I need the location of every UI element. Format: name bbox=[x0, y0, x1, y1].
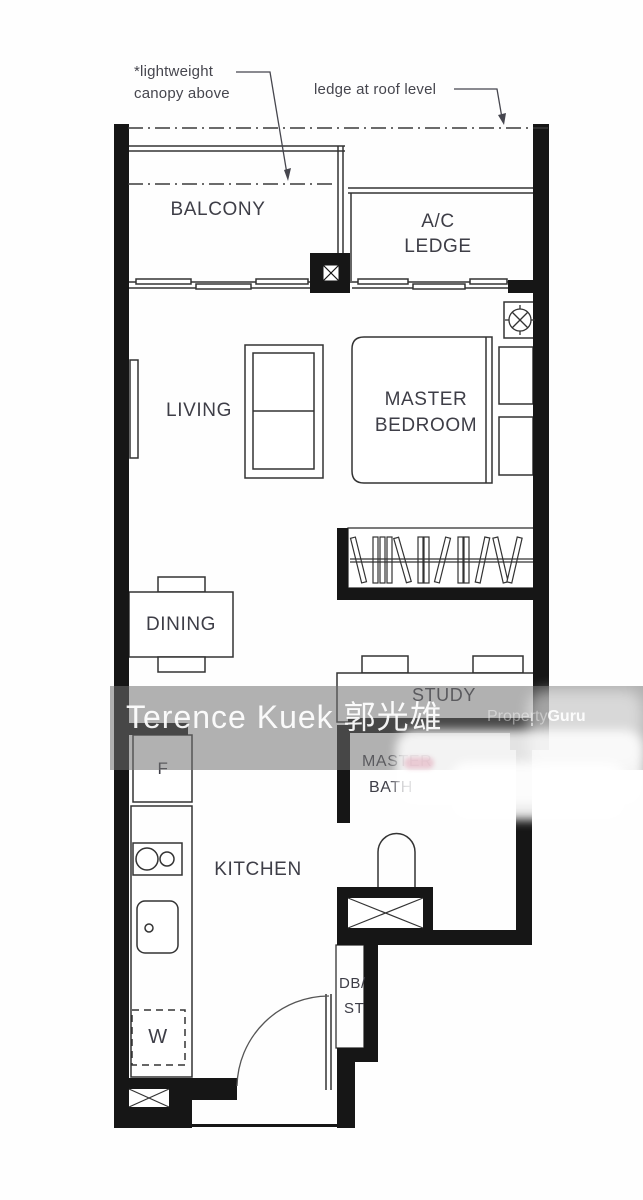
blur-blob bbox=[450, 762, 626, 820]
door-swing-arc bbox=[237, 996, 329, 1086]
room-label-dining: DINING bbox=[130, 614, 232, 636]
color-smudge bbox=[404, 757, 434, 769]
watermark-brand: PropertyGuru bbox=[487, 708, 586, 726]
washer-label: W bbox=[142, 1026, 174, 1049]
canopy-annotation: *lightweight canopy above bbox=[134, 61, 230, 105]
room-label-kitchen: KITCHEN bbox=[212, 859, 304, 881]
blur-blob bbox=[528, 690, 643, 770]
dbst-closet bbox=[336, 945, 364, 1048]
wall-left bbox=[114, 124, 129, 1128]
study-chair bbox=[473, 656, 523, 673]
side-window bbox=[130, 360, 138, 458]
watermark-agent-name: Terence Kuek 郭光雄 bbox=[126, 700, 443, 734]
wall-right bbox=[533, 124, 549, 730]
watermark-brand-bold: Guru bbox=[547, 708, 585, 725]
room-label-master-bedroom: MASTER BEDROOM bbox=[366, 387, 486, 439]
watermark-brand-light: Property bbox=[487, 708, 547, 725]
study-chair bbox=[362, 656, 408, 673]
canopy-annotation-line2: canopy above bbox=[134, 83, 230, 105]
floor-plan-page: *lightweight canopy above ledge at roof … bbox=[0, 0, 643, 1200]
roof-ledge-annotation: ledge at roof level bbox=[314, 81, 436, 98]
wall-entry bbox=[337, 1062, 355, 1128]
sink bbox=[137, 901, 178, 953]
wall-bath-bottom bbox=[337, 930, 531, 945]
leader-arrowheads bbox=[284, 113, 506, 181]
room-label-ac-ledge: A/C LEDGE bbox=[392, 209, 484, 259]
bedside-cabinet bbox=[499, 347, 533, 404]
dining-chair bbox=[158, 577, 205, 592]
room-label-balcony: BALCONY bbox=[148, 199, 288, 221]
toilet bbox=[378, 834, 415, 889]
floor-plan-drawing bbox=[0, 0, 643, 1200]
dining-chair bbox=[158, 657, 205, 672]
wall-dbst bbox=[364, 945, 378, 1055]
room-label-db-st-line2: ST bbox=[344, 1000, 364, 1017]
room-label-db-st-line1: DB/ bbox=[339, 975, 366, 992]
bedside-cabinet bbox=[499, 417, 533, 475]
wall-wardrobe bbox=[337, 588, 549, 600]
canopy-annotation-line1: *lightweight bbox=[134, 61, 230, 83]
room-label-living: LIVING bbox=[148, 400, 250, 422]
